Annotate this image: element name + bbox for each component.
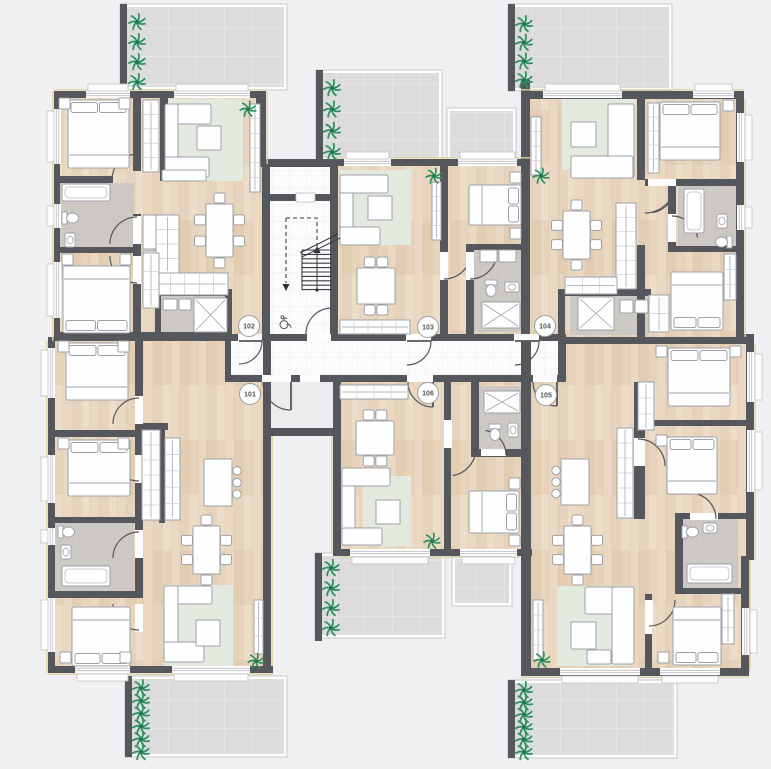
svg-text:103: 103 — [422, 325, 434, 332]
svg-text:102: 102 — [243, 324, 255, 331]
svg-text:105: 105 — [540, 393, 552, 400]
svg-text:101: 101 — [244, 392, 256, 399]
svg-text:104: 104 — [539, 324, 551, 331]
svg-text:106: 106 — [422, 391, 434, 398]
